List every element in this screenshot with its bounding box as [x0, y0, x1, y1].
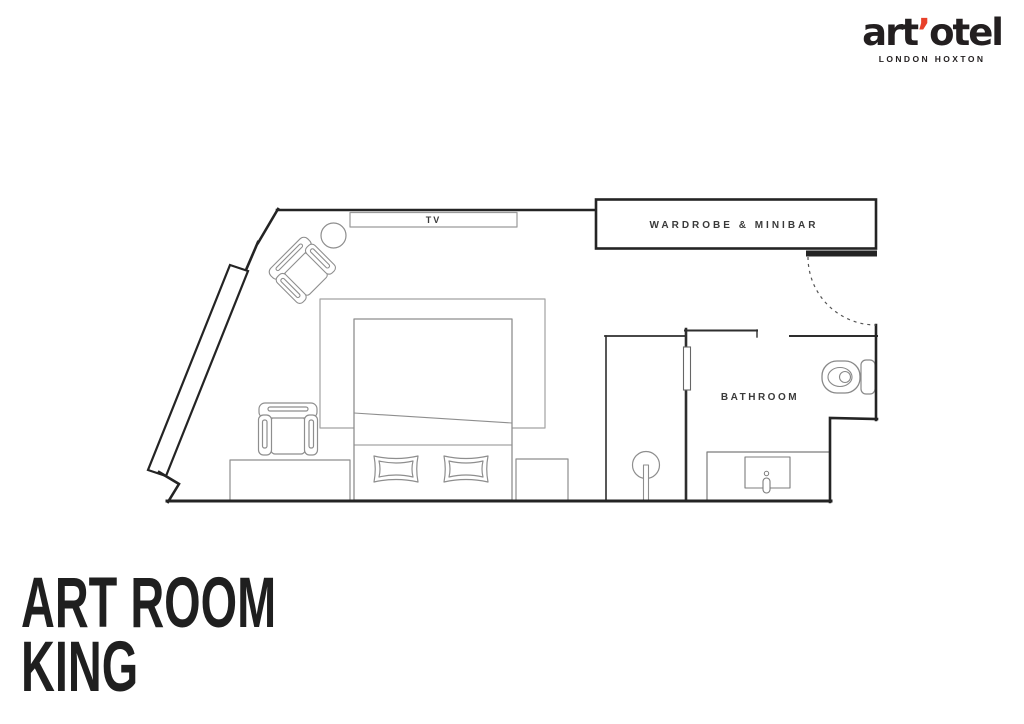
faucet-icon — [763, 478, 770, 493]
bathroom-label: BATHROOM — [721, 392, 799, 403]
pillow-right — [444, 456, 488, 482]
bench — [516, 459, 568, 501]
toilet-icon — [822, 360, 875, 394]
room-title: ART ROOM KING — [21, 572, 276, 700]
vanity — [707, 452, 830, 501]
desk — [230, 460, 350, 501]
shower-glass-panel — [684, 347, 691, 390]
bottom-right-step-wall — [830, 418, 877, 502]
entry-door-swing-icon — [808, 257, 876, 325]
desk-chair-icon — [259, 403, 318, 455]
bed — [354, 319, 512, 500]
tv-label: TV — [426, 215, 442, 225]
window-jamb — [246, 242, 258, 270]
bottom-left-wall — [159, 472, 179, 502]
page: art’otel LONDON HOXTON — [0, 0, 1024, 724]
wardrobe-minibar-label: WARDROBE & MINIBAR — [650, 220, 819, 231]
entry-wall-segment — [806, 251, 877, 257]
room-title-line1: ART ROOM — [21, 572, 276, 636]
pillow-left — [374, 456, 418, 482]
top-left-diagonal-wall — [258, 209, 278, 243]
shower — [633, 452, 660, 502]
side-table — [321, 223, 346, 248]
room-title-line2: KING — [21, 636, 276, 700]
window — [148, 265, 248, 476]
